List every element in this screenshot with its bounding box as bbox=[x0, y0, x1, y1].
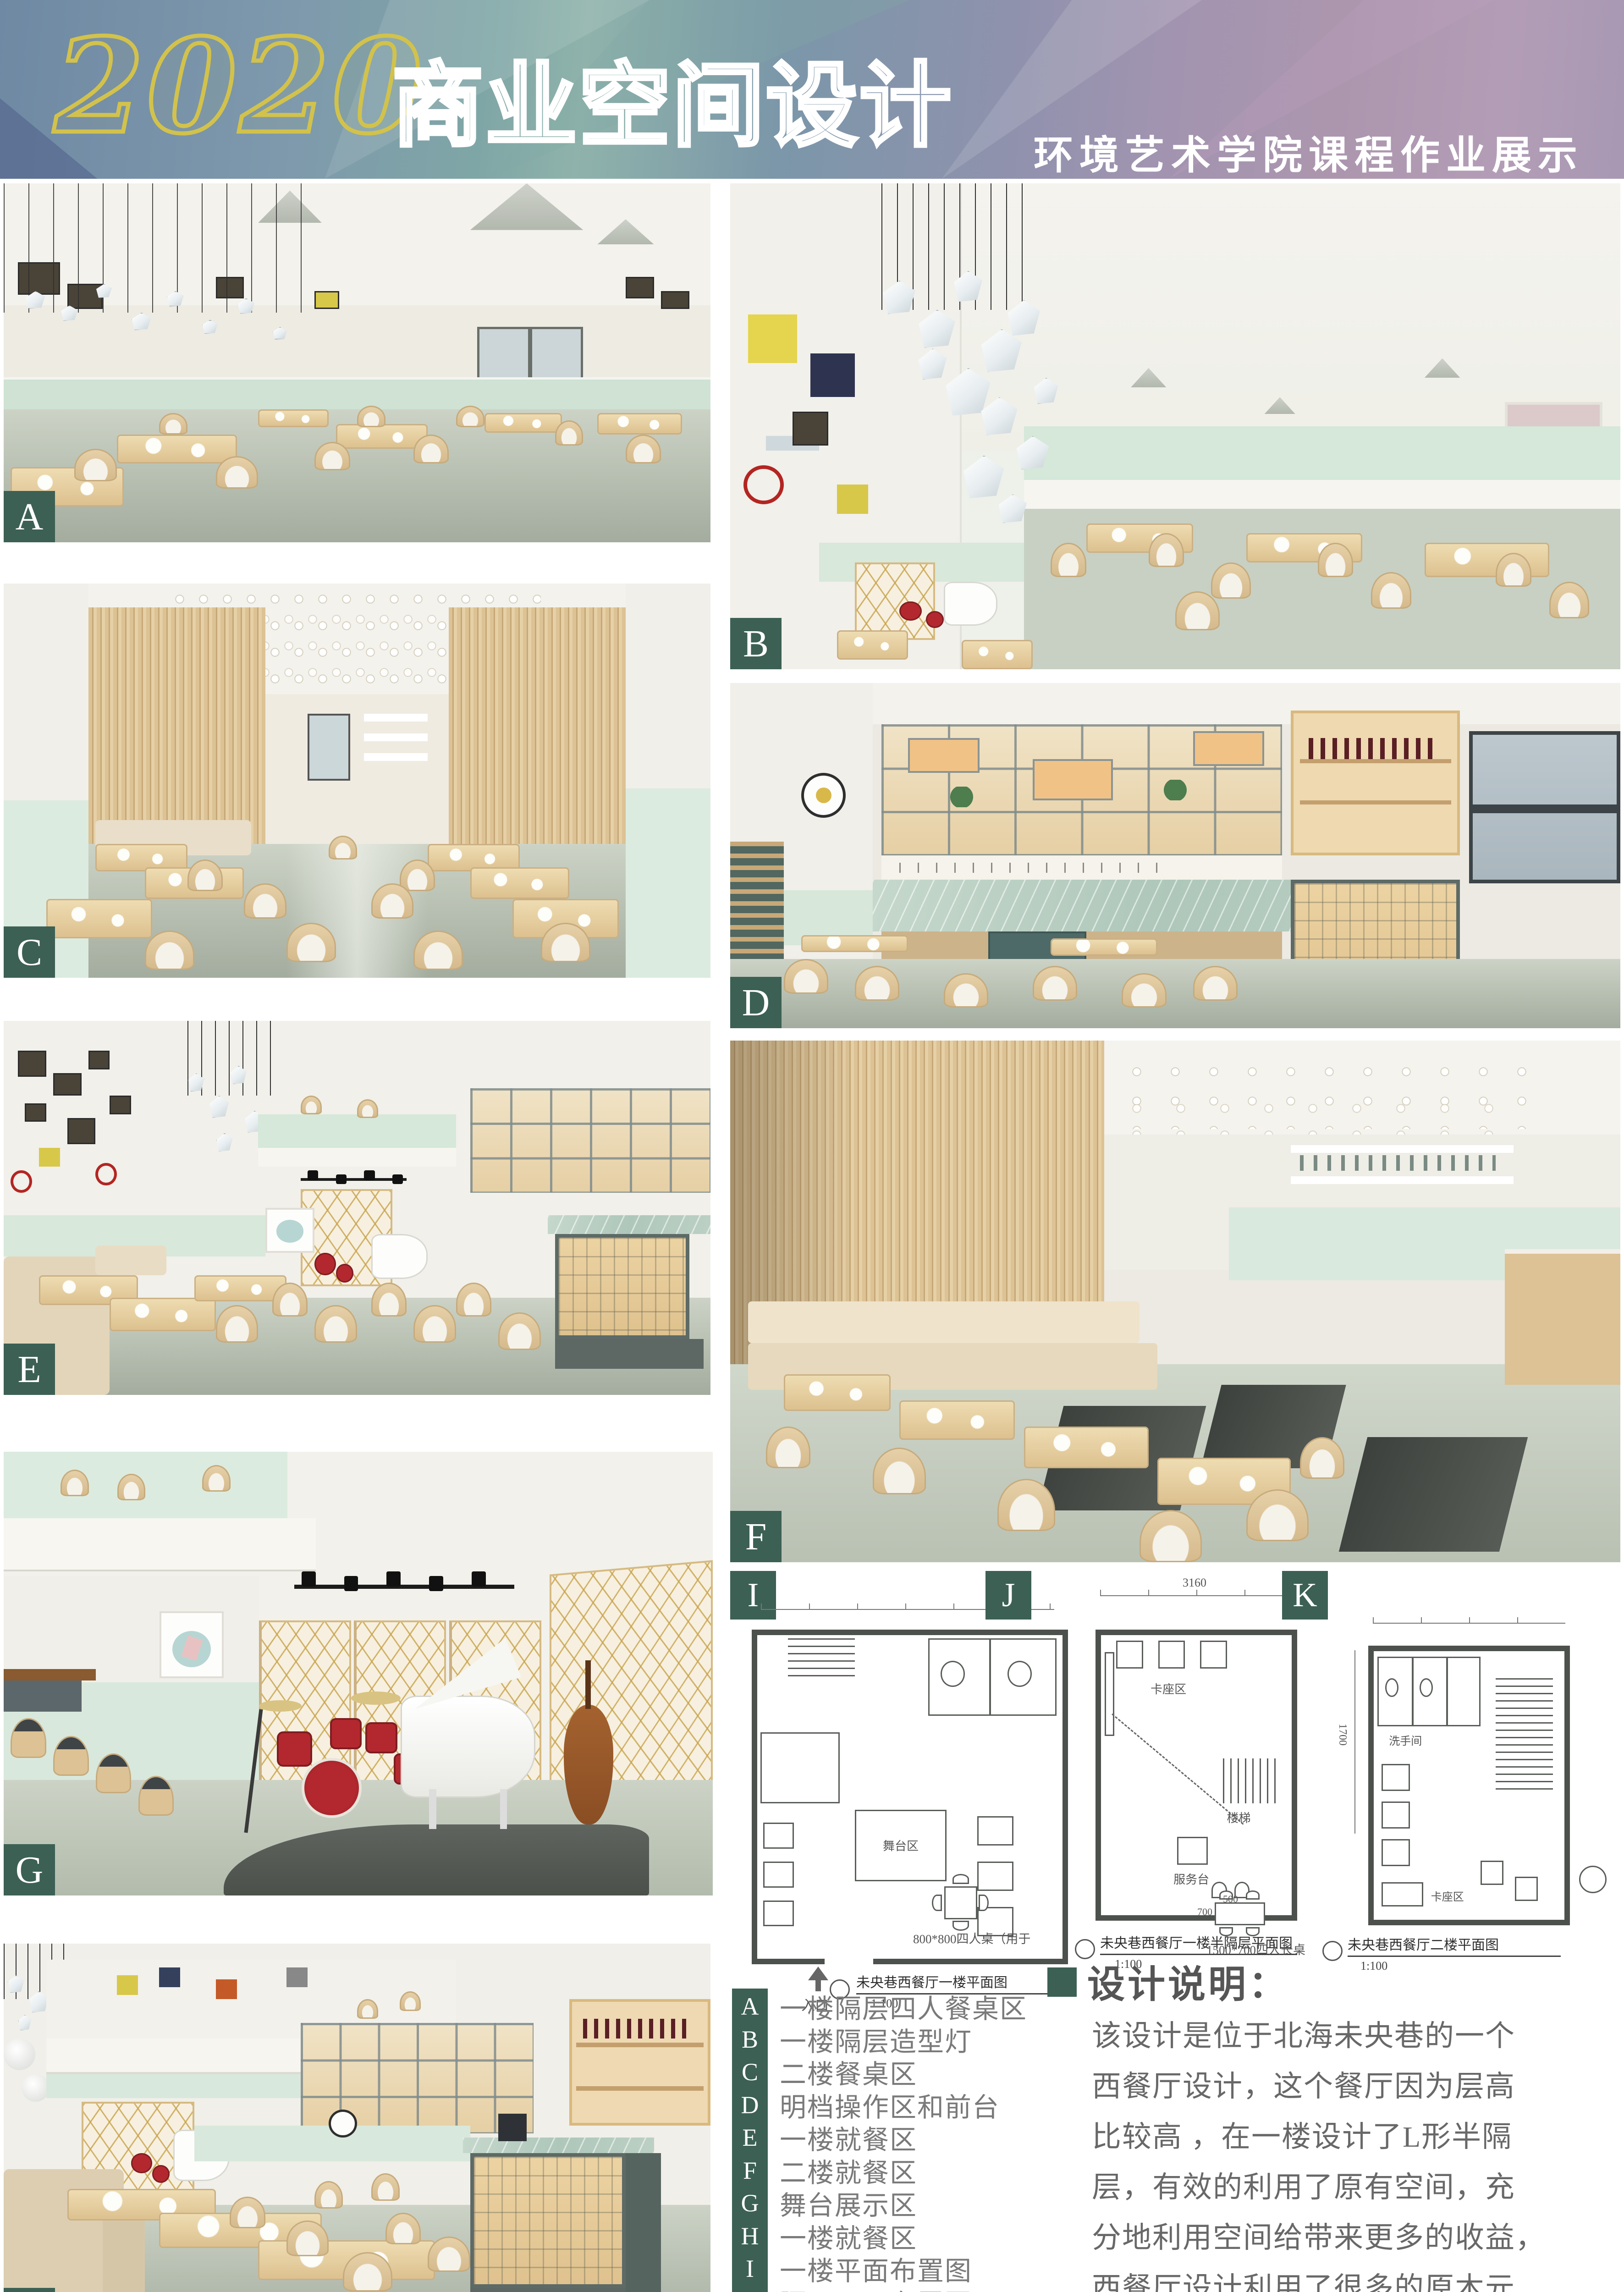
wall-art bbox=[793, 412, 828, 446]
legend-letter-box: J bbox=[732, 2284, 768, 2292]
wall-art bbox=[110, 1096, 131, 1114]
wall-art bbox=[53, 1073, 82, 1096]
hanging-shelf-grid bbox=[470, 1088, 710, 1193]
plant-icon bbox=[1157, 780, 1193, 800]
white-piano bbox=[371, 1234, 428, 1279]
dim-number: 700 bbox=[1197, 1906, 1212, 1918]
legend-letter-box: E bbox=[732, 2120, 768, 2155]
table-symbol bbox=[977, 1816, 1014, 1846]
parapet-edge bbox=[1024, 480, 1620, 509]
table-symbol bbox=[1382, 1764, 1410, 1791]
booth-seat bbox=[763, 1901, 794, 1926]
fixture-circle bbox=[1385, 1678, 1398, 1697]
description-line: 分地利用空间给带来更多的收益， bbox=[1092, 2214, 1546, 2256]
dining-table bbox=[1024, 1427, 1149, 1468]
table-legend-symbol bbox=[944, 1886, 977, 1919]
dining-table bbox=[336, 424, 428, 449]
render-a-label: A bbox=[4, 491, 55, 542]
shelf-board bbox=[576, 2086, 704, 2091]
wall-shelf bbox=[364, 733, 428, 741]
counter-side bbox=[626, 2153, 661, 2292]
mezzanine-wall bbox=[258, 1114, 456, 1152]
glass-parapet bbox=[4, 377, 710, 409]
wine-shelf bbox=[569, 1999, 710, 2126]
high-table bbox=[1051, 938, 1157, 956]
mezzanine-parapet-wall bbox=[1024, 426, 1620, 485]
shelf-cell bbox=[1193, 731, 1264, 766]
high-table bbox=[801, 935, 908, 953]
plan-k-scale: 1:100 bbox=[1360, 1959, 1387, 1973]
poster-page: 2020 商业空间设计 环境艺术学院课程作业展示 bbox=[0, 0, 1624, 2292]
dim-number: 1700 bbox=[1336, 1724, 1349, 1746]
legend-letter: I bbox=[746, 2254, 754, 2283]
piano-leg bbox=[429, 1789, 436, 1829]
render-g-stage-display: G bbox=[4, 1452, 713, 1895]
description-line: 比较高 ，在一楼设计了L形半隔 bbox=[1092, 2113, 1512, 2155]
legend-letter-box: C bbox=[732, 2054, 768, 2090]
description-line: 该设计是位于北海未央巷的一个 bbox=[1092, 2012, 1515, 2055]
wall-art bbox=[810, 353, 855, 397]
bench-backrest bbox=[748, 1301, 1140, 1343]
render-h-first-floor-dining: H bbox=[4, 1944, 710, 2292]
counter-base bbox=[555, 1339, 704, 1369]
counter-base bbox=[470, 2288, 640, 2292]
drum-tom bbox=[277, 1731, 312, 1767]
plan-k-caption: 未央巷西餐厅二楼平面图 bbox=[1348, 1934, 1499, 1954]
render-d-label: D bbox=[730, 977, 782, 1028]
wall-clock-red bbox=[11, 1170, 32, 1193]
spotlight-icon bbox=[472, 1571, 486, 1587]
render-a-dining-mezzanine: A bbox=[4, 183, 710, 542]
window-city-view bbox=[1469, 731, 1620, 883]
plan-j-mezzanine: 卡座区 楼梯 服务台 bbox=[1096, 1630, 1297, 1921]
clock-face bbox=[816, 788, 831, 803]
wall-art bbox=[67, 1118, 96, 1144]
dining-table bbox=[117, 435, 237, 463]
stairs-hatch bbox=[788, 1638, 855, 1680]
label-letter: I bbox=[748, 1576, 759, 1615]
legend-letter-box: B bbox=[732, 2022, 768, 2057]
table-legend-symbol bbox=[1215, 1902, 1265, 1925]
table-symbol bbox=[1515, 1877, 1538, 1901]
dining-table bbox=[597, 413, 682, 435]
counter bbox=[1505, 1249, 1620, 1385]
plan-k-second-floor: 洗手间 卡座区 bbox=[1368, 1646, 1570, 1925]
sphere-lamp bbox=[4, 2039, 35, 2070]
description-bullet bbox=[1047, 1967, 1077, 1997]
front-counter bbox=[470, 2153, 626, 2287]
booth-seat bbox=[1382, 1882, 1424, 1906]
wood-slat-wall bbox=[88, 607, 265, 844]
door-opening bbox=[825, 1950, 874, 1967]
legend-letter: G bbox=[741, 2189, 759, 2217]
wall-art bbox=[25, 1103, 46, 1122]
wall-art bbox=[88, 1051, 110, 1069]
drum-icon bbox=[131, 2153, 152, 2173]
render-b-label: B bbox=[730, 618, 782, 669]
wine-bottles bbox=[1309, 738, 1433, 759]
plan-i-note: 800*800四人桌（用于 bbox=[913, 1929, 1031, 1947]
label-letter: K bbox=[1293, 1576, 1317, 1615]
chair-symbol bbox=[979, 1895, 989, 1911]
hanging-utensils bbox=[899, 863, 1167, 873]
wall-shelf bbox=[1291, 1176, 1514, 1184]
spotlight-icon bbox=[308, 1170, 318, 1180]
stairs-hatch bbox=[1223, 1758, 1280, 1803]
pendant-wires bbox=[4, 183, 314, 313]
label-letter: A bbox=[16, 495, 44, 539]
legend-letter-box: I bbox=[732, 2251, 768, 2286]
description-line: 层，有效的利用了原有空间，充 bbox=[1092, 2164, 1515, 2206]
spotlight-icon bbox=[429, 1576, 443, 1591]
grand-piano bbox=[401, 1696, 535, 1798]
render-f-second-floor-dining: F bbox=[730, 1041, 1620, 1562]
legend-letter: F bbox=[743, 2156, 757, 2185]
label-letter: B bbox=[743, 622, 769, 666]
table-symbol bbox=[1481, 1861, 1503, 1885]
round-table-symbol bbox=[1579, 1866, 1607, 1893]
chair-symbol bbox=[952, 1874, 969, 1884]
dining-table bbox=[258, 409, 329, 427]
wall-shelf bbox=[1291, 1145, 1514, 1153]
render-h-label: H bbox=[4, 2288, 55, 2292]
room-label: 洗手间 bbox=[1389, 1732, 1422, 1748]
spotlight-icon bbox=[364, 1170, 374, 1180]
drum-icon bbox=[314, 1253, 336, 1275]
legend-letter: B bbox=[742, 2025, 758, 2054]
white-piano bbox=[944, 582, 997, 625]
dining-table bbox=[46, 899, 152, 938]
mezzanine-parapet bbox=[4, 1518, 316, 1571]
label-letter: E bbox=[17, 1347, 41, 1392]
piano-leg bbox=[500, 1789, 507, 1829]
mezzanine-parapet bbox=[258, 1148, 456, 1167]
booth-seat bbox=[763, 1862, 794, 1887]
pos-screen bbox=[498, 2114, 527, 2141]
counter-top bbox=[548, 1215, 710, 1234]
dimension-line bbox=[1373, 1623, 1565, 1624]
plan-i-label: I bbox=[730, 1571, 776, 1620]
legend-letter: E bbox=[743, 2123, 758, 2152]
bar-counter-base bbox=[4, 1680, 82, 1712]
wall-art bbox=[748, 314, 797, 363]
table-symbol bbox=[977, 1862, 1014, 1891]
label-letter: J bbox=[1002, 1576, 1015, 1615]
room-label: 楼梯 bbox=[1227, 1809, 1251, 1826]
render-d-open-kitchen-counter: D bbox=[730, 683, 1620, 1028]
dining-table bbox=[837, 630, 908, 660]
painting-plate bbox=[276, 1220, 304, 1242]
dining-table bbox=[899, 1400, 1015, 1439]
bass-drum bbox=[302, 1758, 362, 1818]
bottles-row bbox=[1300, 1155, 1496, 1171]
window-mullion bbox=[1473, 804, 1617, 813]
wall-art bbox=[626, 277, 654, 298]
label-letter: C bbox=[17, 930, 42, 975]
back-wall bbox=[4, 305, 710, 384]
shelf-board bbox=[1300, 800, 1451, 804]
room-label: 服务台 bbox=[1173, 1870, 1209, 1887]
poster-subtitle: 环境艺术学院课程作业展示 bbox=[1034, 123, 1584, 179]
wall-shelf bbox=[364, 753, 428, 761]
spotlight-icon bbox=[302, 1571, 316, 1587]
plan-j-label: J bbox=[985, 1571, 1031, 1620]
wall-art bbox=[314, 291, 339, 309]
shelf-block bbox=[1105, 1652, 1114, 1736]
dimension-line-vertical bbox=[1354, 1650, 1355, 1834]
legend-letter-box: G bbox=[732, 2185, 768, 2221]
room-label: 卡座区 bbox=[1151, 1680, 1186, 1697]
poster-title: 商业空间设计 bbox=[392, 31, 953, 164]
spotlight-icon bbox=[386, 1571, 401, 1587]
render-e-label: E bbox=[4, 1344, 55, 1395]
table-symbol bbox=[1382, 1802, 1410, 1829]
front-counter bbox=[555, 1234, 689, 1339]
mini-art bbox=[216, 1979, 237, 1999]
dining-table bbox=[110, 1298, 215, 1331]
mini-art bbox=[286, 1967, 308, 1987]
shelf-cell bbox=[1033, 759, 1113, 800]
drum-tom bbox=[330, 1718, 362, 1749]
chair-symbol bbox=[1246, 1927, 1260, 1936]
chair bbox=[456, 406, 484, 427]
legend-letter: J bbox=[745, 2287, 754, 2292]
legend-letter-box: F bbox=[732, 2153, 768, 2188]
fixture-circle bbox=[1007, 1661, 1032, 1686]
stage-area: 舞台区 bbox=[855, 1810, 947, 1881]
window bbox=[308, 714, 350, 781]
booth-table bbox=[1116, 1641, 1143, 1669]
sphere-lamp bbox=[22, 2074, 50, 2102]
dim-number: 3160 bbox=[1183, 1576, 1206, 1590]
legend-letter: H bbox=[741, 2222, 759, 2250]
mini-art bbox=[159, 1967, 180, 1987]
chair bbox=[357, 1099, 378, 1118]
shelf-cell bbox=[908, 738, 979, 772]
legend-row-j: J 隔层平面布置图 bbox=[732, 2282, 972, 2292]
mini-art bbox=[117, 1975, 138, 1995]
label-letter: G bbox=[16, 1848, 44, 1892]
legend-letter-box: D bbox=[732, 2087, 768, 2123]
service-counter bbox=[1177, 1837, 1208, 1865]
stage-deco-screen bbox=[855, 562, 935, 640]
booth-seat bbox=[763, 1823, 794, 1848]
chair bbox=[329, 836, 357, 859]
header-banner: 2020 商业空间设计 环境艺术学院课程作业展示 bbox=[0, 0, 1624, 179]
legend-letter-box: A bbox=[732, 1989, 768, 2024]
dim-number: 500 bbox=[1223, 1893, 1238, 1905]
wine-bottles bbox=[583, 2019, 689, 2039]
dining-table bbox=[484, 413, 562, 433]
spotlight-icon bbox=[392, 1174, 403, 1184]
room-label: 舞台区 bbox=[883, 1837, 919, 1854]
render-c-second-floor-dining: C bbox=[4, 584, 710, 978]
mezzanine-wall bbox=[4, 1452, 287, 1527]
dining-table bbox=[962, 640, 1033, 669]
booth-table bbox=[1158, 1641, 1185, 1669]
chair bbox=[357, 406, 385, 427]
partition bbox=[1412, 1657, 1414, 1726]
chair-symbol bbox=[932, 1895, 942, 1911]
cello-neck bbox=[585, 1660, 591, 1709]
partition bbox=[1446, 1657, 1448, 1726]
wall-art bbox=[837, 485, 868, 514]
legend-letter: D bbox=[741, 2091, 759, 2119]
plant-icon bbox=[944, 787, 980, 807]
bar-counter-top bbox=[4, 1669, 96, 1680]
shelf-board bbox=[576, 2043, 704, 2047]
render-c-label: C bbox=[4, 926, 55, 978]
wall-clock bbox=[329, 2110, 357, 2137]
sofa-bench bbox=[95, 1245, 166, 1275]
mint-wainscot bbox=[46, 2074, 343, 2098]
table-symbol bbox=[1382, 1839, 1410, 1866]
drum-icon bbox=[899, 601, 922, 621]
legend-letter: C bbox=[742, 2058, 758, 2086]
legend-letter: A bbox=[741, 1992, 759, 2021]
wall-art bbox=[661, 291, 689, 309]
drum-icon bbox=[926, 611, 944, 628]
entrance-arrow-icon bbox=[808, 1967, 828, 1980]
cake-painting bbox=[160, 1611, 223, 1678]
cymbal-icon bbox=[351, 1691, 401, 1705]
label-letter: F bbox=[745, 1515, 767, 1559]
render-b-sculpted-lamps: B bbox=[730, 183, 1620, 669]
chair-symbol bbox=[1219, 1927, 1233, 1936]
counter-top bbox=[463, 2138, 654, 2154]
dimension-line bbox=[1100, 1595, 1293, 1596]
caption-bubble bbox=[1322, 1941, 1343, 1961]
dark-floor-panel bbox=[1339, 1437, 1528, 1552]
wall-art bbox=[39, 1148, 60, 1167]
caption-underline bbox=[1348, 1956, 1561, 1957]
dining-table bbox=[470, 867, 569, 899]
label-letter: D bbox=[742, 981, 770, 1025]
wall-clock-red bbox=[743, 465, 783, 504]
mint-wainscot bbox=[626, 788, 710, 978]
shelf-board bbox=[1300, 759, 1451, 763]
description-title: 设计说明： bbox=[1087, 1954, 1289, 2008]
partition bbox=[989, 1638, 991, 1716]
wall-shelf bbox=[364, 714, 428, 722]
poster-year: 2020 bbox=[54, 10, 425, 162]
fixture-circle bbox=[1420, 1678, 1433, 1697]
plan-i-first-floor: 舞台区 bbox=[752, 1630, 1068, 1964]
booth-table bbox=[1200, 1641, 1227, 1669]
wall-clock-red bbox=[95, 1163, 116, 1185]
chair bbox=[301, 1096, 322, 1114]
dining-table bbox=[784, 1374, 891, 1411]
render-e-first-floor-dining: E bbox=[4, 1021, 710, 1395]
room-block bbox=[760, 1732, 840, 1803]
stairs-hatch bbox=[1496, 1678, 1553, 1791]
description-line: 西餐厅设计，这个餐厅因为层高 bbox=[1092, 2063, 1515, 2105]
wood-slat-wall bbox=[449, 607, 626, 844]
legend-letter-box: H bbox=[732, 2218, 768, 2254]
render-g-label: G bbox=[4, 1844, 55, 1895]
chair-symbol bbox=[1246, 1890, 1260, 1900]
spotlight-icon bbox=[344, 1576, 358, 1591]
room-label: 卡座区 bbox=[1431, 1888, 1464, 1904]
render-f-label: F bbox=[730, 1511, 782, 1562]
description-line: 西餐厅设计利用了很多的原木元 bbox=[1092, 2264, 1515, 2292]
wall-art bbox=[18, 1051, 46, 1077]
fixture-circle bbox=[941, 1661, 965, 1686]
spotlight-icon bbox=[336, 1174, 347, 1184]
wall-clock bbox=[801, 773, 846, 818]
wine-shelf bbox=[1291, 711, 1460, 855]
cymbal-icon bbox=[259, 1700, 302, 1712]
cake-painting bbox=[265, 1208, 315, 1253]
legend-text: 隔层平面布置图 bbox=[780, 2282, 972, 2292]
drum-tom bbox=[365, 1722, 397, 1753]
plan-k-label: K bbox=[1282, 1571, 1328, 1620]
